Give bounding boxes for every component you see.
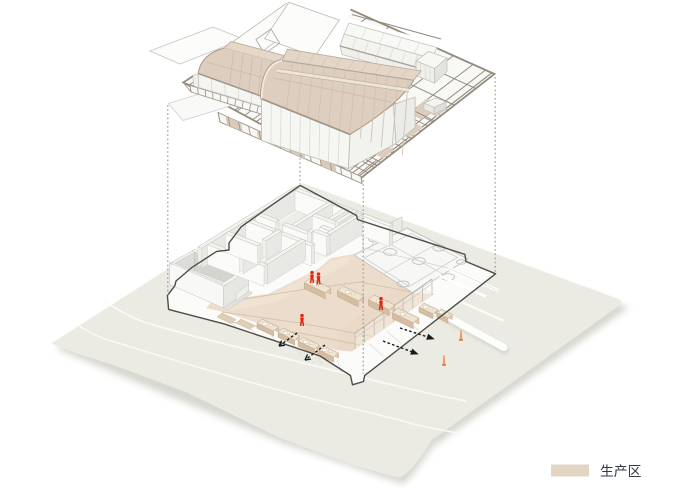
svg-text:生产区: 生产区 [600, 464, 642, 479]
